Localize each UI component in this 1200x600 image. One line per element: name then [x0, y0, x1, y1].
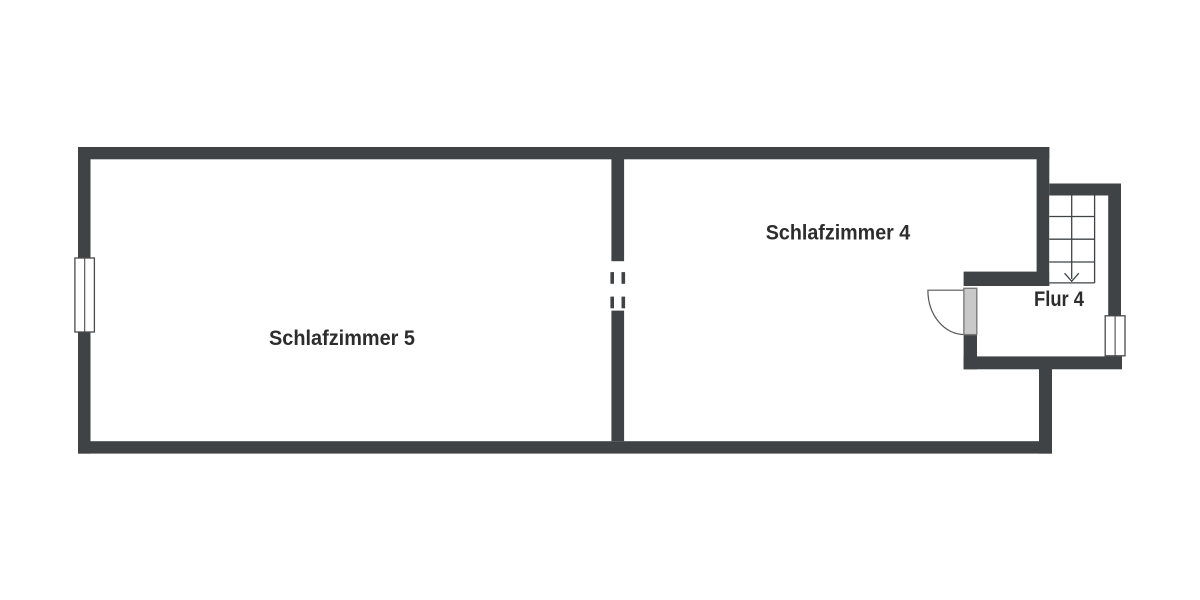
svg-text:Flur 4: Flur 4: [1034, 287, 1084, 311]
svg-text:Schlafzimmer 5: Schlafzimmer 5: [269, 327, 415, 350]
svg-text:Schlafzimmer 4: Schlafzimmer 4: [766, 222, 911, 245]
